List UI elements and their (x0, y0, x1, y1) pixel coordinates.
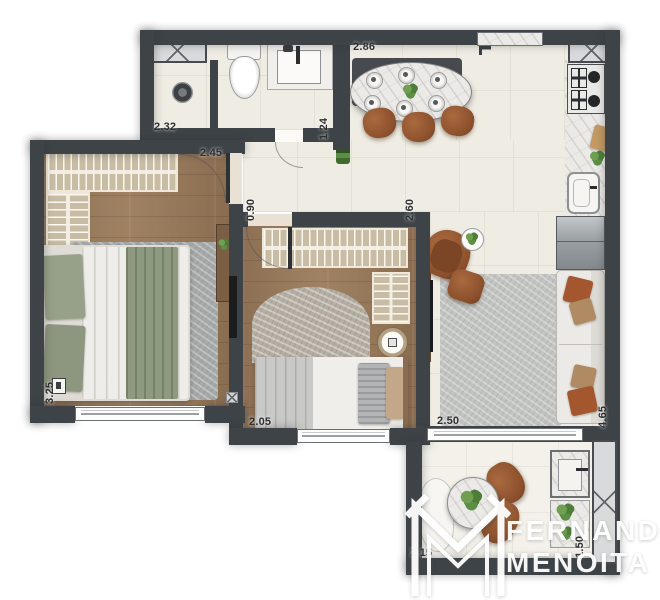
wall-bath-left (140, 30, 154, 144)
entrance-threshold (477, 32, 543, 46)
table-lamp-icon (388, 338, 397, 347)
gourmet-counter (550, 450, 590, 498)
bedroom1-tv-panel-icon (229, 276, 237, 338)
dim-living-length: 4.65 (597, 406, 609, 428)
burner-grate-icon (571, 90, 587, 110)
bedroom2-rug (252, 287, 370, 363)
wall-bedroom2-bottom-left (229, 428, 297, 445)
burner-icon (588, 95, 600, 107)
bedroom1-closet-hangers (46, 152, 178, 192)
wall-bedroom1-bottom-left (30, 406, 75, 423)
sofa-seam (559, 344, 602, 346)
gourmet-faucet-icon (576, 468, 588, 471)
place-setting-icon (430, 72, 447, 89)
fridge-divider (557, 241, 604, 243)
dim-bedroom1-length: 3.25 (44, 382, 56, 404)
dim-dining-width: 2.86 (353, 41, 375, 53)
shower-drain-icon (172, 82, 193, 103)
refrigerator-icon (556, 216, 605, 270)
cooktop-icon (567, 64, 605, 114)
entrance-door-swing-icon (479, 46, 491, 55)
dim-bathroom-depth: 1.24 (318, 118, 330, 140)
brand-name-line2: MENOITA (506, 549, 651, 577)
kitchen-sink-icon (567, 172, 600, 214)
burner-grate-icon (571, 68, 587, 88)
dim-bedroom2-width: 2.05 (249, 416, 271, 428)
bed2-headboard (403, 357, 408, 430)
bed1-pillow (42, 254, 85, 320)
place-setting-icon (398, 67, 415, 84)
bed1-throw-green (126, 247, 178, 399)
bedroom2-bed (255, 357, 408, 430)
dim-living-width: 2.60 (404, 199, 416, 221)
living-sliding-door (427, 428, 583, 441)
faucet-icon (590, 186, 597, 189)
bedroom2-window (297, 429, 390, 443)
place-setting-icon (366, 72, 383, 89)
brand-monogram-icon (405, 486, 511, 598)
dining-centerpiece-plant-icon (402, 83, 419, 100)
bedroom1-window (75, 407, 205, 421)
brand-name-line1: FERNANDO (506, 517, 660, 545)
marker-glyph (56, 382, 61, 389)
wall-bedroom1-left (30, 140, 44, 423)
bed2-pillow-tan (386, 367, 404, 419)
burner-icon (588, 71, 600, 83)
dim-bathroom-width: 2.32 (154, 121, 176, 133)
dining-chair (402, 112, 435, 142)
sofa-pillow-rust (567, 385, 599, 416)
bedroom1-console (216, 224, 230, 302)
vanity-soap-icon (283, 45, 293, 52)
dim-living-window: 2.50 (437, 415, 459, 427)
floor-plan-canvas: 2.86 2.32 2.45 1.24 0.90 2.60 3.25 2.05 … (0, 0, 660, 600)
bedroom1-door-threshold (230, 153, 242, 204)
bathroom-door-threshold (275, 130, 303, 142)
bedroom2-door-leaf (288, 227, 292, 269)
corner-vent-icon (226, 392, 238, 403)
bedroom1-door-leaf (226, 153, 230, 203)
wall-top (140, 30, 620, 45)
sink-basin (573, 179, 590, 207)
wall-bedroom2-right (416, 212, 430, 445)
side-table-plant-icon (465, 232, 479, 246)
dim-hall-width: 0.90 (245, 199, 257, 221)
gourmet-sink-basin (558, 459, 582, 491)
vanity-faucet-icon (296, 46, 300, 64)
bedroom2-closet-side (372, 272, 410, 324)
wall-divider-upper (229, 140, 243, 153)
place-setting-icon (428, 95, 445, 112)
kitchen-plant-icon (589, 150, 606, 167)
dim-bedroom1-width: 2.45 (200, 147, 222, 159)
bedroom2-side-table (377, 327, 408, 358)
